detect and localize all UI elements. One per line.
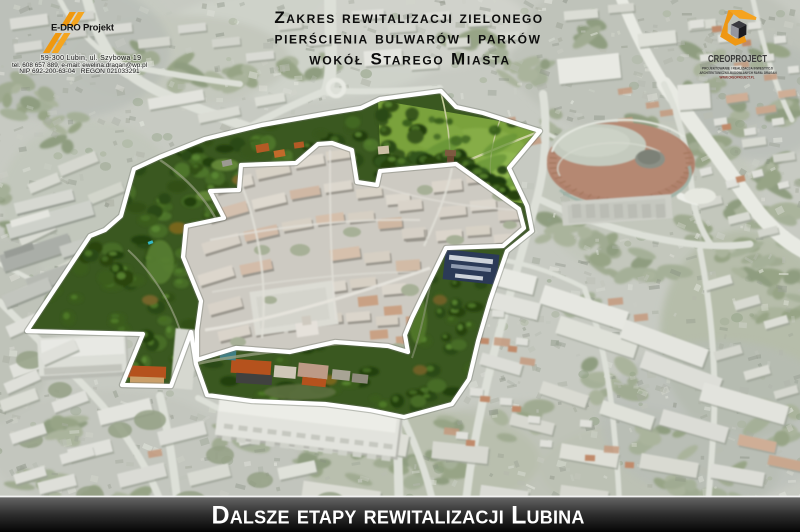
svg-text:CREOPROJECT: CREOPROJECT	[708, 54, 767, 65]
svg-text:E-DRO Projekt: E-DRO Projekt	[51, 23, 115, 34]
svg-text:Zakres rewitalizacji zielonego: Zakres rewitalizacji zielonego	[274, 8, 543, 27]
svg-text:WWW.CREOPROJECT.PL: WWW.CREOPROJECT.PL	[720, 75, 756, 79]
svg-text:wokół Starego Miasta: wokół Starego Miasta	[309, 50, 511, 69]
svg-text:NIP 692-200-63-04 REGON 0210: NIP 692-200-63-04 REGON 021033291	[19, 68, 140, 75]
svg-text:ARCHITEKTONICZNO-BUDOWLANYCH R: ARCHITEKTONICZNO-BUDOWLANYCH RAFAŁ DRAGA…	[700, 71, 777, 75]
svg-text:Dalsze etapy rewitalizacji Lub: Dalsze etapy rewitalizacji Lubina	[211, 502, 584, 530]
svg-text:pierścienia bulwarów i parków: pierścienia bulwarów i parków	[274, 29, 541, 48]
